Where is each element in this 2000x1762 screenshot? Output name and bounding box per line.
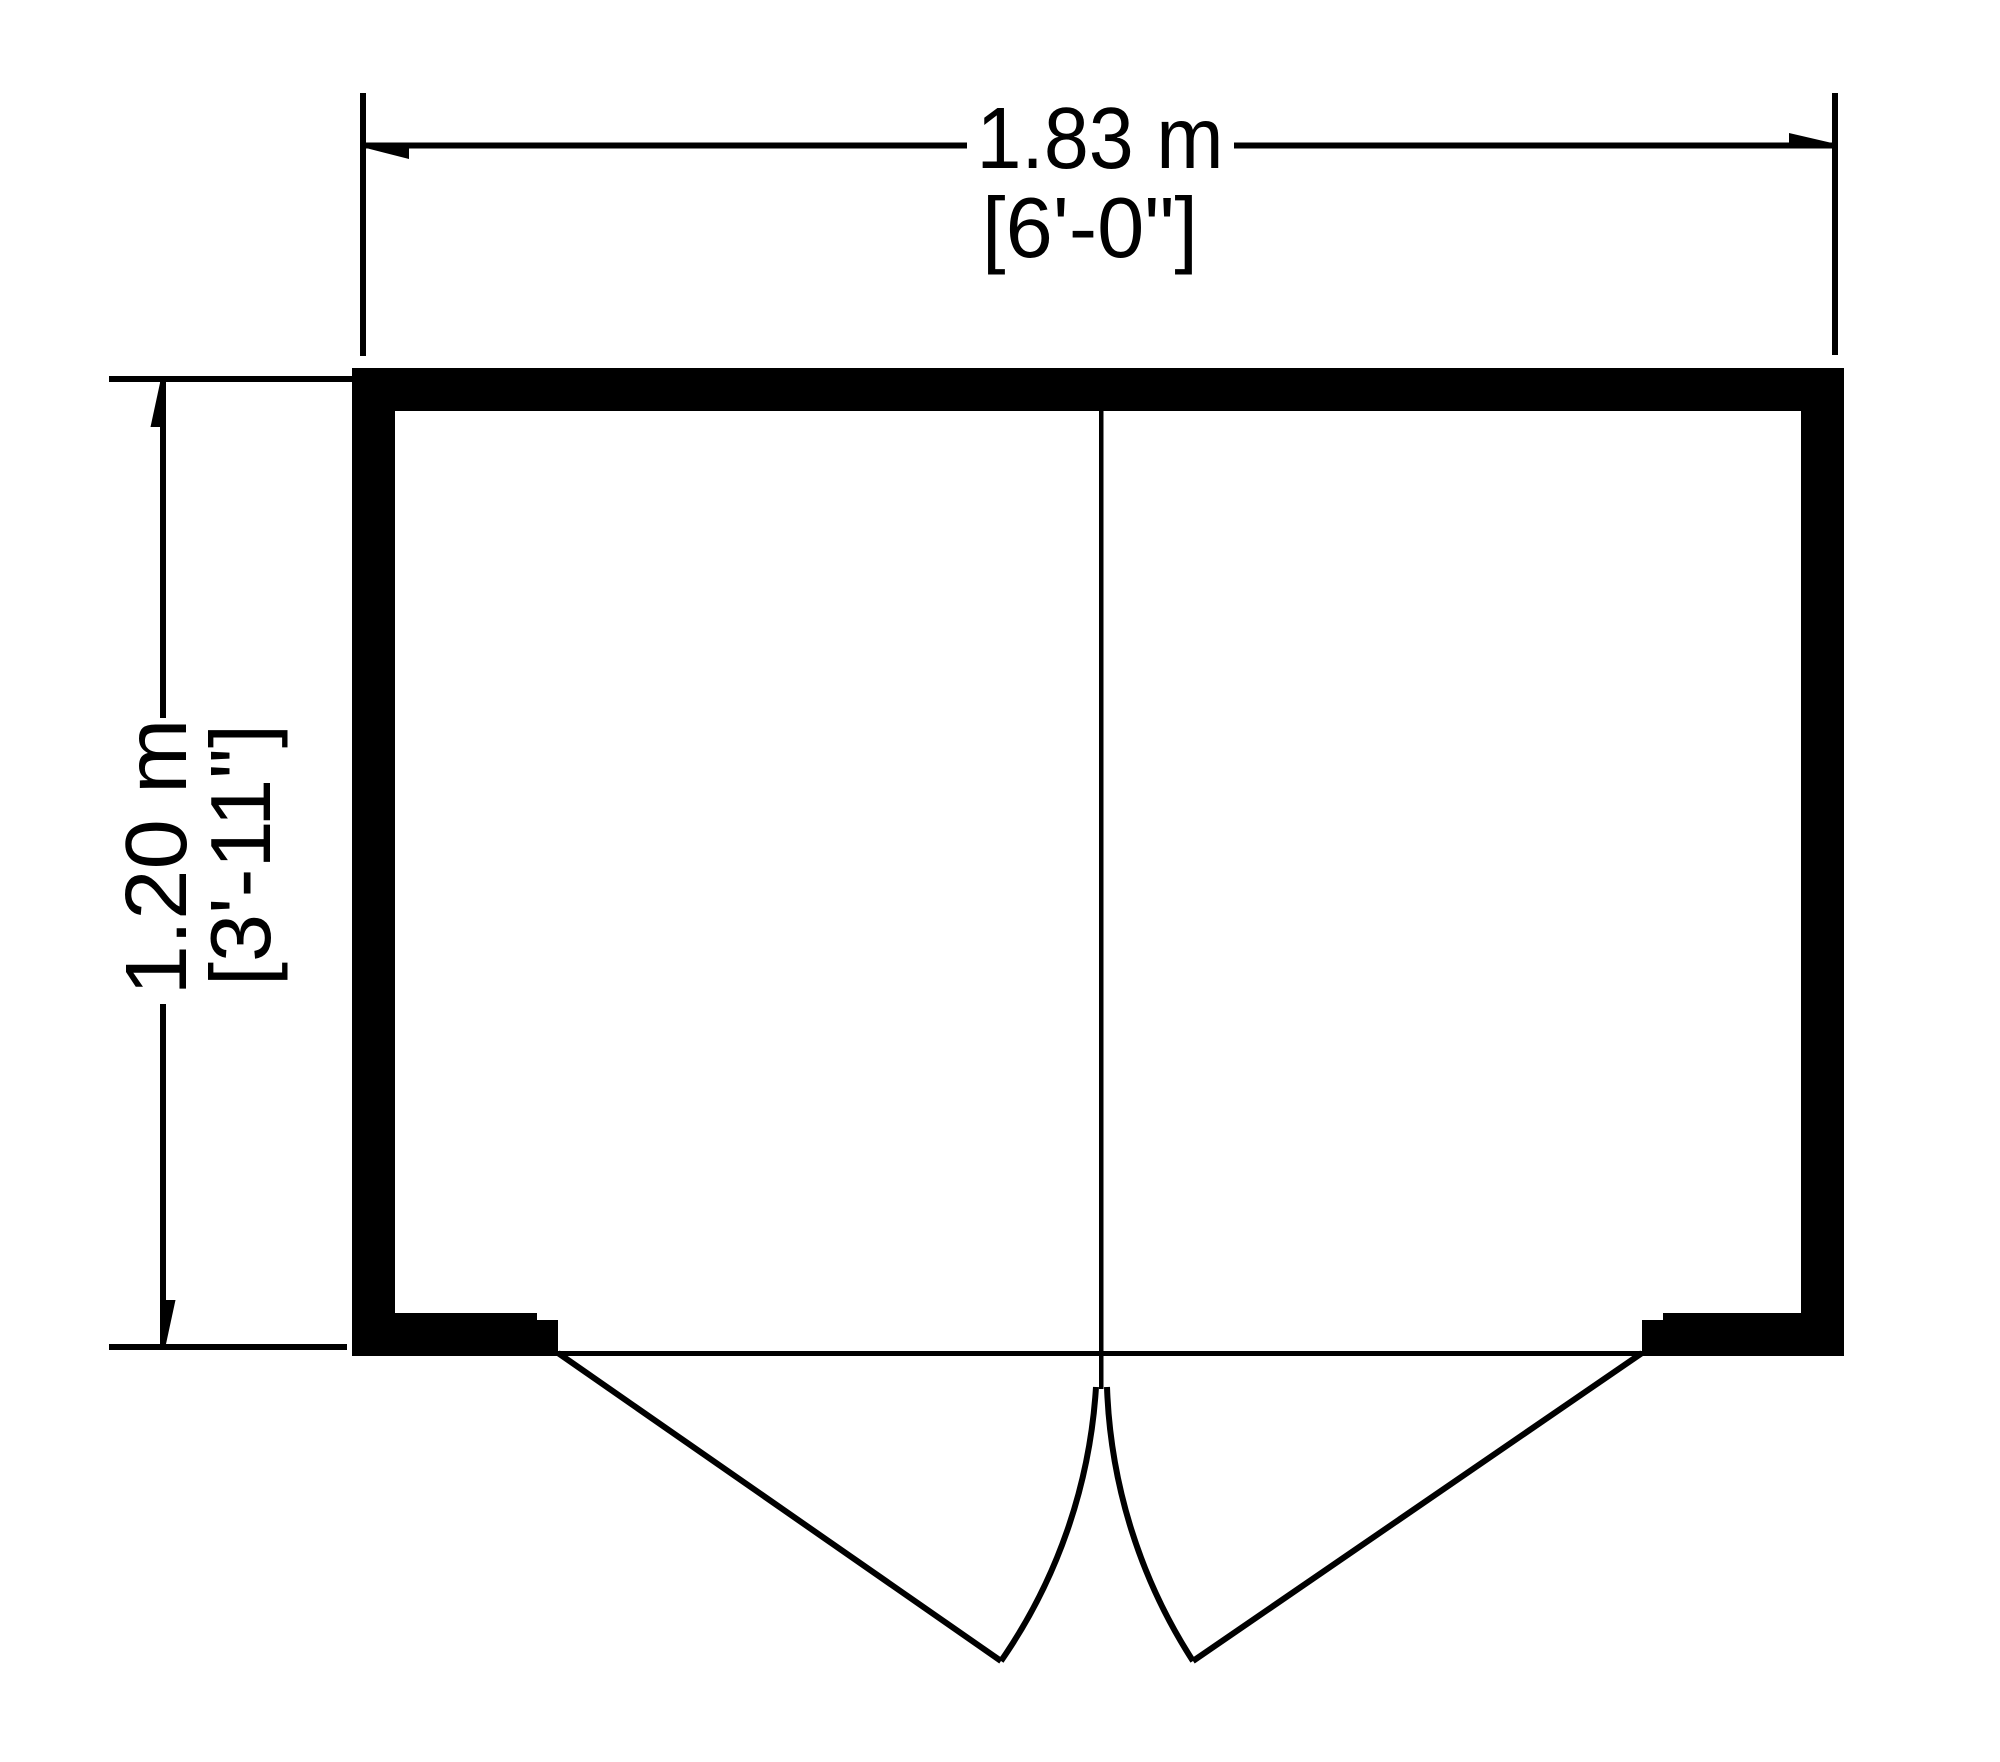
svg-text:1.20 m: 1.20 m: [108, 719, 205, 996]
svg-text:1.83 m: 1.83 m: [977, 90, 1224, 187]
svg-text:[6'-0"]: [6'-0"]: [982, 181, 1198, 276]
svg-text:[3'-11"]: [3'-11"]: [194, 724, 289, 986]
